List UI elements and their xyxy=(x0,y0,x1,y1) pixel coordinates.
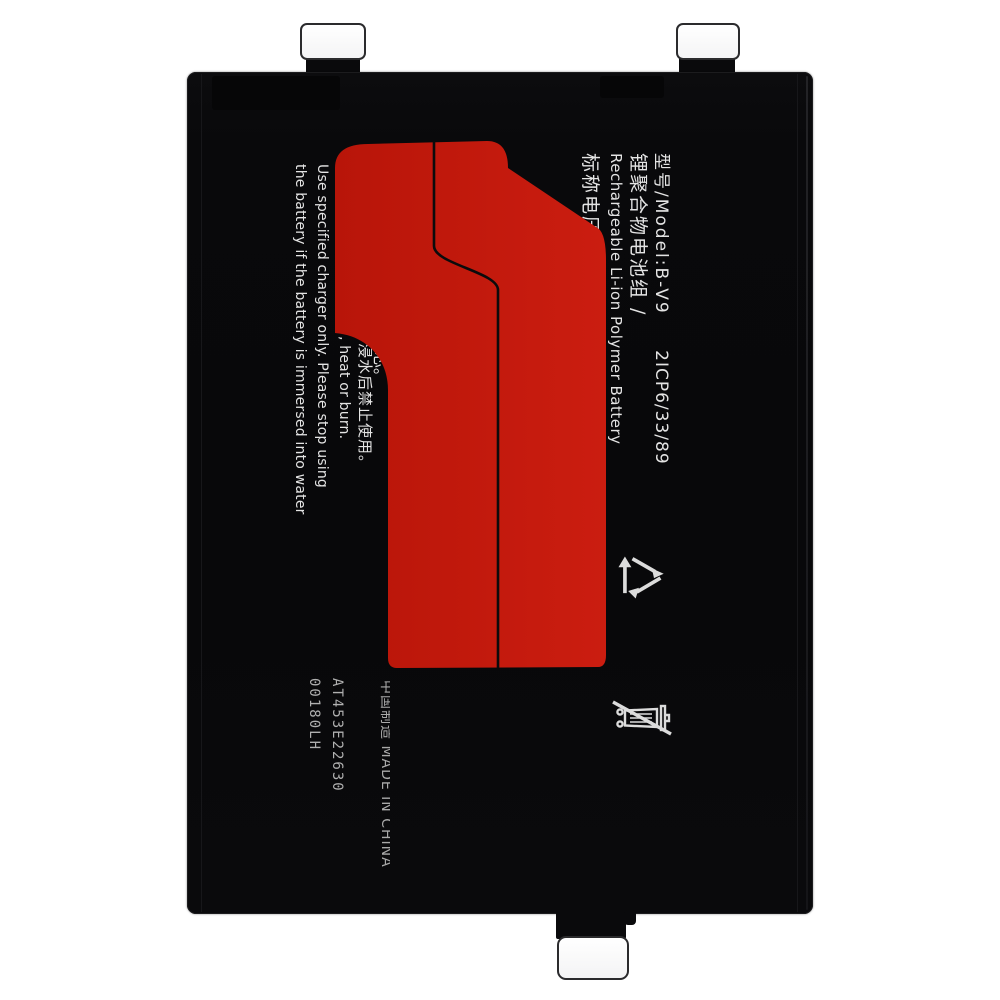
bottom-tab-neck xyxy=(556,910,626,939)
recycle-icon xyxy=(612,544,668,610)
top-connector-left xyxy=(212,76,340,110)
label-seam-left xyxy=(201,74,202,912)
battery-label: 型号/Model:B-V9 2ICP6/33/89 锂聚合物电池组 / Rech… xyxy=(280,140,680,860)
origin-text-clipped: 中国制造 MADE IN CHINA xyxy=(377,680,390,880)
label-seam-right xyxy=(797,74,798,912)
top-connector-right xyxy=(600,76,664,98)
top-right-pull-tab xyxy=(676,23,740,60)
bottom-edge-notch xyxy=(624,910,636,925)
top-left-pull-tab xyxy=(300,23,366,60)
serial-number: AT453E22630 xyxy=(329,678,345,793)
right-edge-highlight xyxy=(806,76,808,910)
bottom-pull-tab xyxy=(557,936,629,980)
batch-code: 00180LH xyxy=(306,678,322,751)
origin-text: 中国制造 MADE IN CHINA xyxy=(377,680,390,868)
product-photo: { "scene": { "background": "#ffffff", "s… xyxy=(0,0,1000,1000)
crossed-bin-icon xyxy=(608,696,678,740)
